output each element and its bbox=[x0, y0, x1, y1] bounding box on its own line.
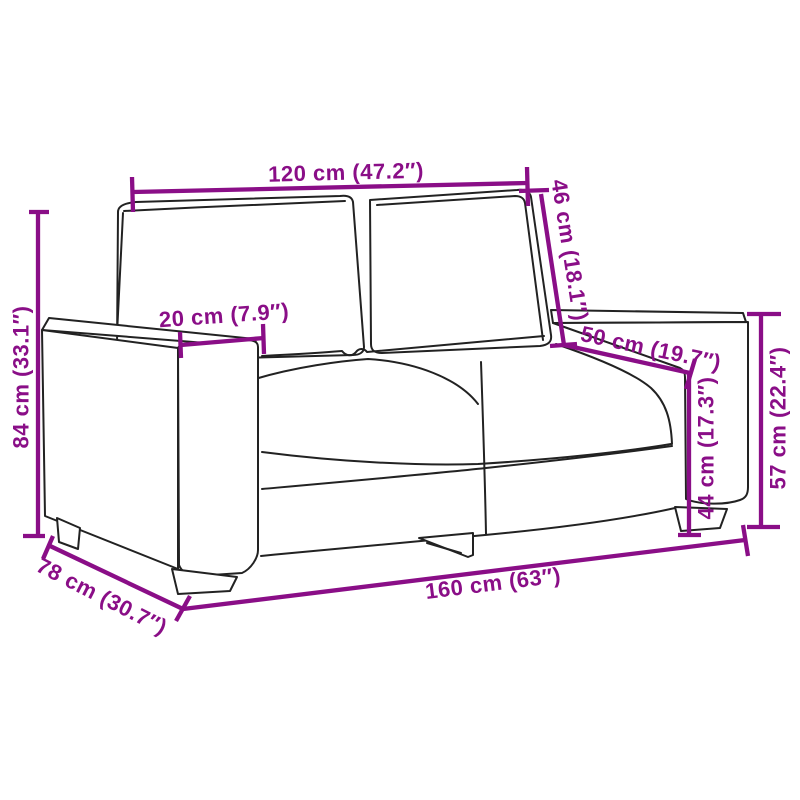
label-total-width: 160 cm (63″) bbox=[424, 562, 562, 603]
back-cushion-right bbox=[370, 190, 551, 353]
label-back-height: 46 cm (18.1″) bbox=[546, 177, 593, 322]
center-leg bbox=[419, 533, 473, 557]
sofa-outline bbox=[42, 190, 748, 594]
label-seat-height: 44 cm (17.3″) bbox=[694, 376, 719, 519]
sofa-dimension-diagram: 120 cm (47.2″) 46 cm (18.1″) 20 cm (7.9″… bbox=[0, 0, 800, 800]
label-total-depth: 78 cm (30.7″) bbox=[33, 553, 172, 640]
seat-and-base bbox=[255, 336, 675, 557]
left-armrest bbox=[42, 318, 258, 594]
label-total-height: 84 cm (33.1″) bbox=[9, 305, 34, 448]
label-top-width: 120 cm (47.2″) bbox=[268, 158, 424, 187]
diagram-canvas: 120 cm (47.2″) 46 cm (18.1″) 20 cm (7.9″… bbox=[0, 0, 800, 800]
label-armrest-height: 57 cm (22.4″) bbox=[766, 346, 791, 489]
